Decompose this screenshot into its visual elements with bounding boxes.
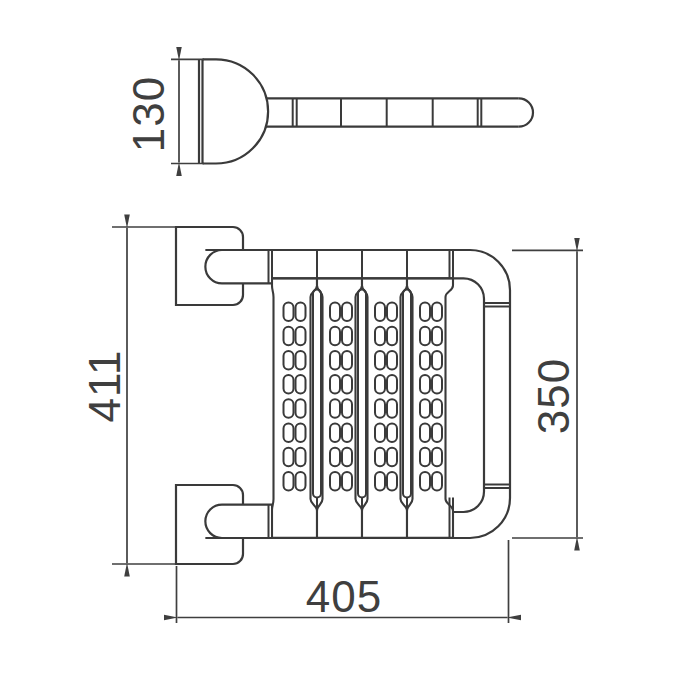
object-lines: [176, 59, 533, 564]
dimension-label-bracket-depth: 130: [124, 76, 173, 152]
bottom-bracket-arm: [205, 505, 272, 538]
dim-overall-width-405: 405: [177, 540, 509, 623]
top-bracket-arm: [205, 250, 272, 283]
spacer-bar: [403, 290, 411, 498]
spacer-bar: [313, 290, 321, 498]
technical-drawing-canvas: 130 411 350 405: [0, 0, 700, 700]
dim-rail-frame-height-350: 350: [512, 250, 583, 538]
right-tube-joints: [484, 303, 510, 488]
dim-bracket-depth-130: 130: [124, 59, 205, 163]
bracket-profile-outline: [203, 59, 269, 163]
rail-end-cap: [519, 98, 533, 126]
dimension-label-overall-height: 411: [80, 349, 129, 422]
dimension-label-overall-width: 405: [306, 572, 382, 621]
wall-brackets: [176, 227, 272, 564]
dimension-label-rail-frame-height: 350: [529, 358, 578, 434]
side-view-rail-dividers: [293, 98, 482, 126]
side-view: [199, 59, 533, 163]
dim-overall-height-411: 411: [80, 227, 177, 564]
spacer-bar: [358, 290, 366, 498]
